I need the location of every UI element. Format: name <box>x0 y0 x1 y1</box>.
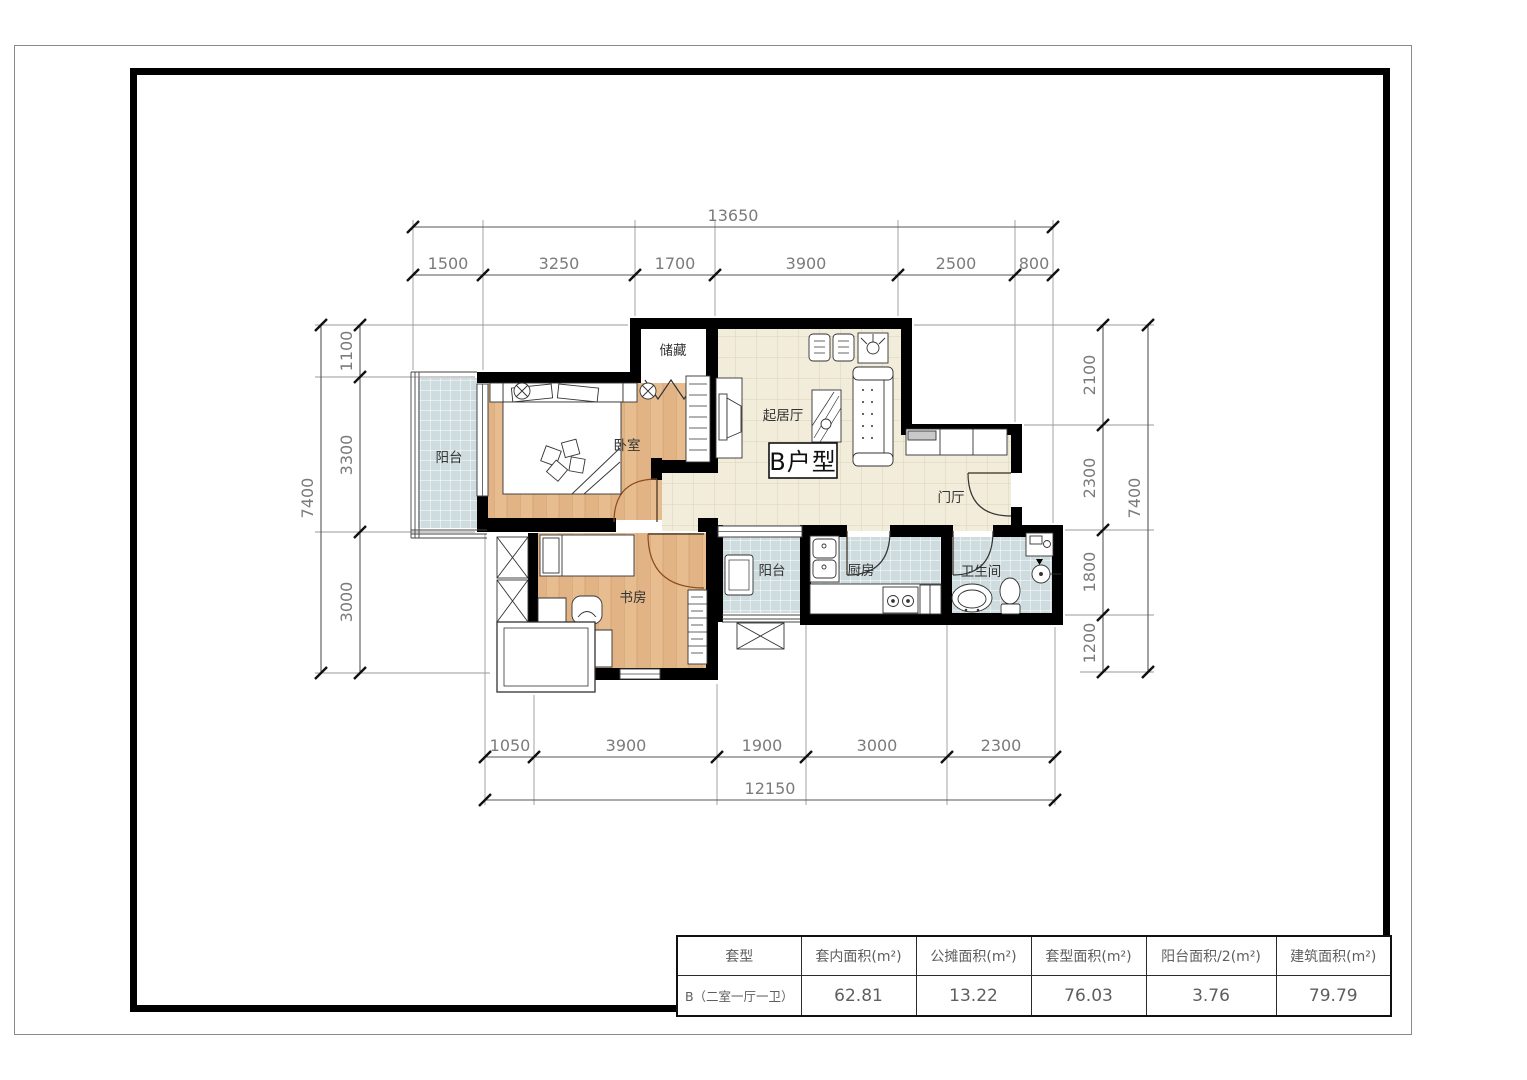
dim-top-seg-3: 3900 <box>786 254 827 273</box>
header-unit-type: 套型 <box>677 936 801 976</box>
dim-top-total: 13650 <box>708 206 759 225</box>
value-shared-area: 13.22 <box>916 976 1031 1017</box>
dim-left-seg-2: 3000 <box>337 582 356 623</box>
dim-bottom-seg-2: 1900 <box>742 736 783 755</box>
unit-title: B户型 <box>769 443 837 478</box>
floor-plan-drawing: 13650 1500 3250 1700 3900 2500 800 1050 … <box>0 0 1527 1080</box>
study-window <box>620 669 660 679</box>
value-construction-area: 79.79 <box>1276 976 1391 1017</box>
desk-chair <box>572 596 602 624</box>
label-bathroom: 卫生间 <box>961 564 1002 580</box>
header-shared-area: 公摊面积(m²) <box>916 936 1031 976</box>
header-construction-area: 建筑面积(m²) <box>1276 936 1391 976</box>
bathtub <box>952 584 992 612</box>
value-unit-type: B（二室一厅一卫） <box>677 976 801 1017</box>
dim-top-seg-2: 1700 <box>655 254 696 273</box>
header-interior-area: 套内面积(m²) <box>801 936 916 976</box>
value-balcony-area: 3.76 <box>1146 976 1276 1017</box>
dim-left-seg-0: 1100 <box>337 331 356 372</box>
dim-top-seg-4: 2500 <box>936 254 977 273</box>
wardrobe <box>686 376 710 462</box>
dim-bottom-total: 12150 <box>745 779 796 798</box>
coffee-table <box>812 390 841 442</box>
dim-right-seg-3: 1200 <box>1080 623 1099 664</box>
label-kitchen: 厨房 <box>848 563 875 579</box>
fridge <box>920 585 941 614</box>
bedroom-balcony-window <box>477 384 488 496</box>
dim-bottom-seg-4: 2300 <box>981 736 1022 755</box>
dim-bottom-seg-1: 3900 <box>606 736 647 755</box>
bookshelf <box>688 590 707 664</box>
tv-cabinet <box>716 378 742 458</box>
label-balcony-service: 阳台 <box>759 563 786 579</box>
sofa <box>853 367 893 466</box>
area-table-header-row: 套型 套内面积(m²) 公摊面积(m²) 套型面积(m²) 阳台面积/2(m²)… <box>677 936 1391 976</box>
label-bedroom: 卧室 <box>614 437 641 454</box>
value-unit-area: 76.03 <box>1031 976 1146 1017</box>
dim-right-seg-2: 1800 <box>1080 552 1099 593</box>
dim-bottom-seg-3: 3000 <box>857 736 898 755</box>
bay-window <box>497 622 595 692</box>
balcony-service-railing <box>722 615 800 622</box>
stove <box>883 587 918 613</box>
plant-box <box>858 333 888 363</box>
dim-right-total: 7400 <box>1125 478 1144 519</box>
area-table: 套型 套内面积(m²) 公摊面积(m²) 套型面积(m²) 阳台面积/2(m²)… <box>676 935 1392 1017</box>
dim-top-seg-0: 1500 <box>428 254 469 273</box>
label-study: 书房 <box>620 590 647 606</box>
label-living: 起居厅 <box>763 408 804 424</box>
label-foyer: 门厅 <box>938 490 965 506</box>
foyer-cabinet <box>906 429 1007 455</box>
header-balcony-area: 阳台面积/2(m²) <box>1146 936 1276 976</box>
balcony-service-window <box>718 526 802 537</box>
ac-platform <box>737 623 784 649</box>
closet-column <box>497 537 528 622</box>
dim-left-total: 7400 <box>298 478 317 519</box>
dim-top-seg-5: 800 <box>1019 254 1050 273</box>
label-balcony-left: 阳台 <box>436 450 463 466</box>
value-interior-area: 62.81 <box>801 976 916 1017</box>
header-unit-area: 套型面积(m²) <box>1031 936 1146 976</box>
ceiling-fan-icon <box>640 383 656 399</box>
dim-right-seg-1: 2300 <box>1080 458 1099 499</box>
dim-bottom-seg-0: 1050 <box>490 736 531 755</box>
unit-title-text: B户型 <box>769 448 836 476</box>
dimensions-left: 7400 1100 3300 3000 <box>298 331 356 623</box>
toilet <box>1000 578 1020 614</box>
drawing-sheet: 13650 1500 3250 1700 3900 2500 800 1050 … <box>0 0 1527 1080</box>
label-storage: 储藏 <box>660 343 688 359</box>
ceiling-fan-icon <box>514 383 530 399</box>
dimensions-bottom: 1050 3900 1900 3000 2300 12150 <box>490 736 1022 798</box>
dim-left-seg-1: 3300 <box>337 435 356 476</box>
dimensions-top: 13650 1500 3250 1700 3900 2500 800 <box>428 206 1050 273</box>
dimensions-right: 2100 2300 1800 1200 7400 <box>1080 355 1144 664</box>
area-table-value-row: B（二室一厅一卫） 62.81 13.22 76.03 3.76 79.79 <box>677 976 1391 1017</box>
dim-right-seg-0: 2100 <box>1080 355 1099 396</box>
dim-top-seg-1: 3250 <box>539 254 580 273</box>
